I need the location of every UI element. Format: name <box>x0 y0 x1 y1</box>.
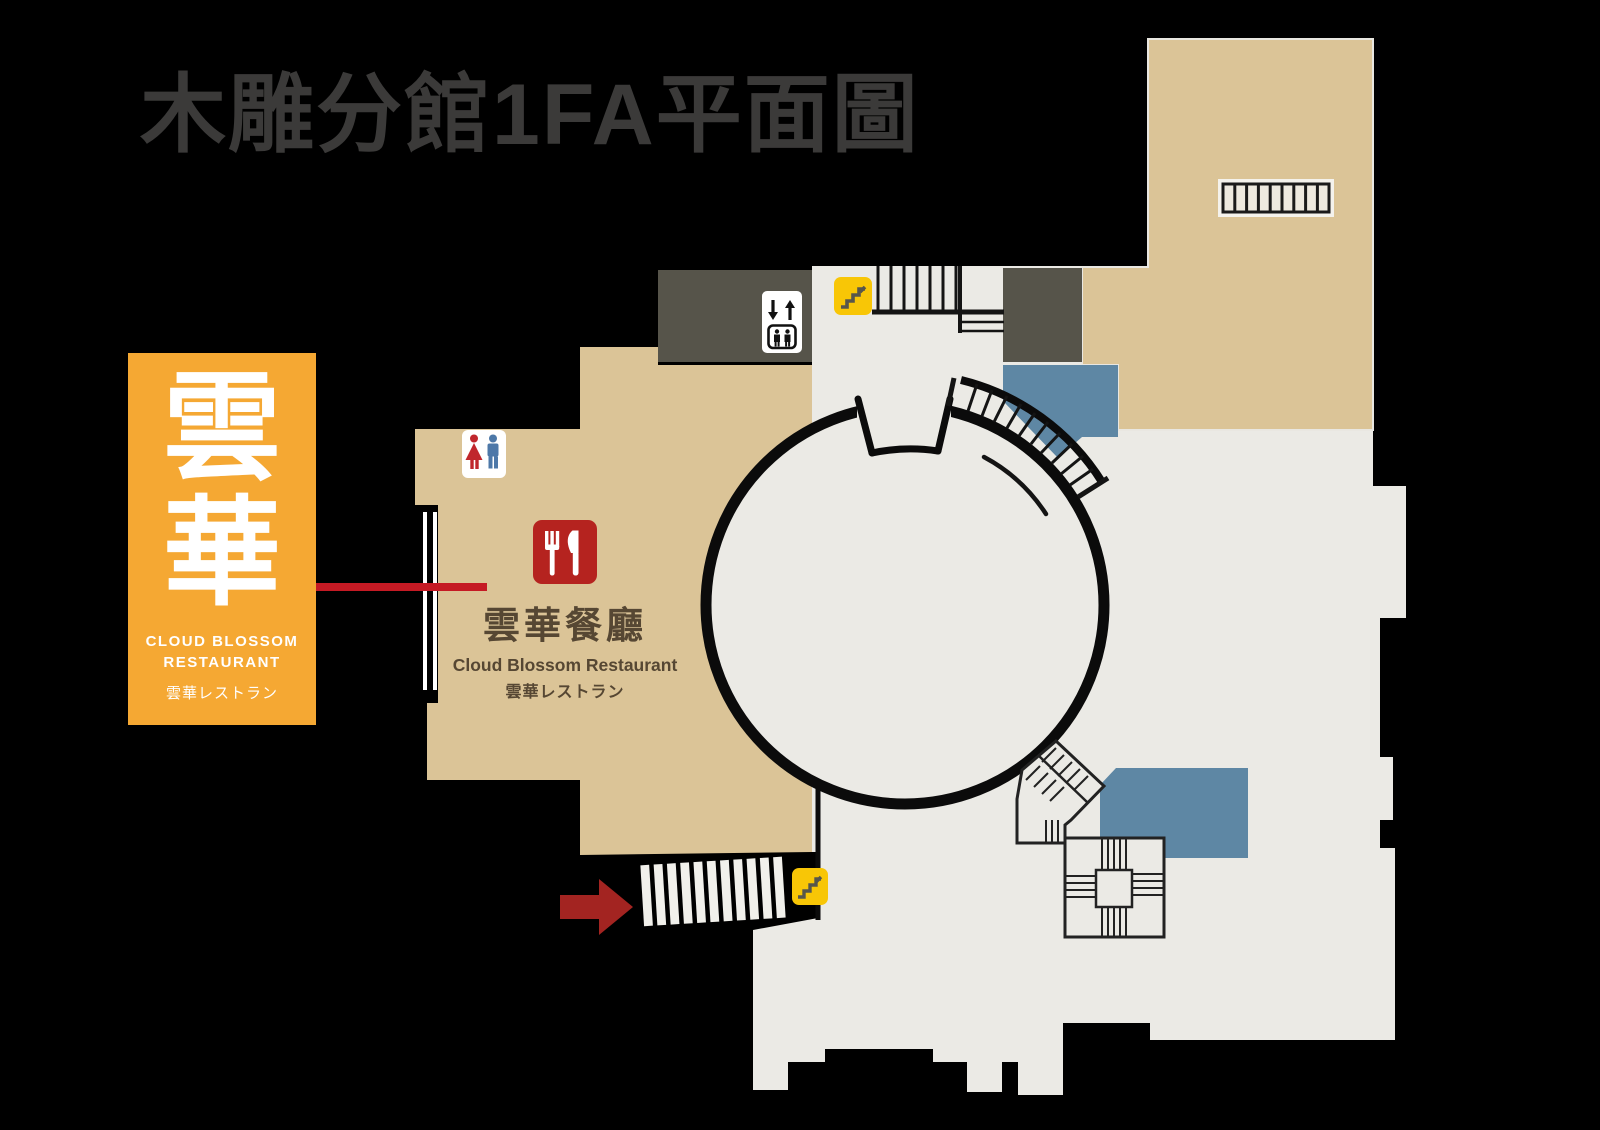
floor-plan-canvas: 木雕分館1FA平面圖 雲 華 CLOUD BLOSSOM RESTAURANT … <box>0 0 1600 1130</box>
callout-line <box>316 583 487 591</box>
square-stair <box>1065 838 1164 937</box>
legend-name-ja: 雲華レストラン <box>166 682 278 703</box>
stairs-icon-upper <box>834 277 872 315</box>
locker-grid <box>1218 179 1334 217</box>
room-wing-northeast <box>1082 39 1373 430</box>
legend-name-en: CLOUD BLOSSOM RESTAURANT <box>146 631 299 673</box>
restaurant-label: 雲華餐廳 Cloud Blossom Restaurant 雲華レストラン <box>420 595 710 702</box>
legend-calligraphy-2: 華 <box>163 492 281 617</box>
stairs-icon-lower <box>792 868 828 905</box>
restaurant-name-en: Cloud Blossom Restaurant <box>420 655 710 676</box>
page-title: 木雕分館1FA平面圖 <box>140 44 920 169</box>
legend-calligraphy-1: 雲 <box>163 367 281 492</box>
elevator-icon <box>762 291 802 353</box>
restaurant-name-zh: 雲華餐廳 <box>420 595 710 649</box>
fork-knife-icon <box>533 520 597 584</box>
restaurant-name-ja: 雲華レストラン <box>420 678 710 702</box>
male-female-restroom-icon <box>462 430 506 478</box>
entrance-arrow <box>560 879 633 935</box>
service-block-east <box>1003 268 1082 362</box>
restaurant-legend-card: 雲 華 CLOUD BLOSSOM RESTAURANT 雲華レストラン <box>128 353 316 725</box>
entrance-stairs <box>640 857 785 927</box>
